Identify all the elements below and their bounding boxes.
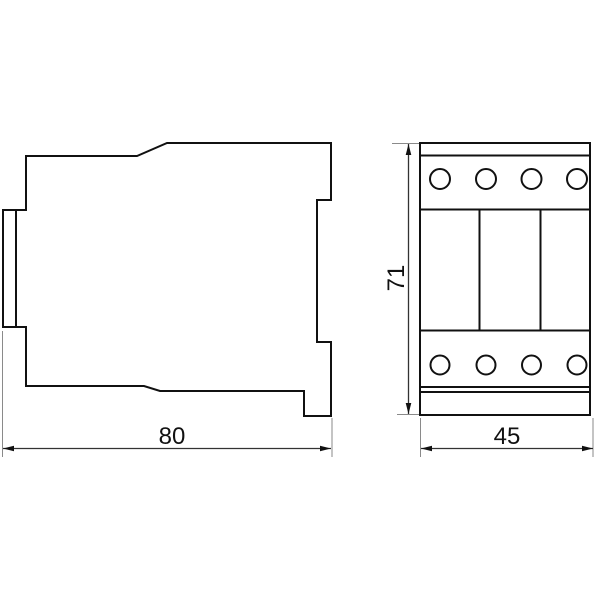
terminal-hole-top-3 — [522, 169, 542, 189]
arrowhead-right-icon — [582, 446, 593, 452]
terminal-hole-top-4 — [567, 169, 587, 189]
terminal-hole-bottom-2 — [477, 356, 496, 375]
arrowhead-right-icon — [320, 446, 331, 452]
technical-drawing: 80 — [0, 0, 600, 600]
terminal-hole-top-2 — [476, 169, 496, 189]
terminal-hole-top-1 — [430, 169, 450, 189]
front-view: 71 45 — [383, 143, 593, 457]
arrowhead-left-icon — [3, 446, 14, 452]
dimension-label-80: 80 — [159, 423, 186, 450]
drawing-canvas: 80 — [0, 0, 600, 600]
front-width-dimension: 45 — [421, 418, 594, 457]
terminal-hole-bottom-4 — [568, 356, 587, 375]
front-height-dimension: 71 — [383, 144, 419, 415]
arrowhead-up-icon — [406, 144, 412, 155]
terminal-hole-bottom-1 — [431, 356, 450, 375]
side-view: 80 — [3, 143, 333, 457]
dimension-label-71: 71 — [383, 265, 410, 292]
terminal-hole-bottom-3 — [522, 356, 541, 375]
dimension-label-45: 45 — [494, 423, 521, 450]
arrowhead-left-icon — [421, 446, 432, 452]
side-view-outline — [3, 143, 331, 416]
arrowhead-down-icon — [406, 403, 412, 414]
